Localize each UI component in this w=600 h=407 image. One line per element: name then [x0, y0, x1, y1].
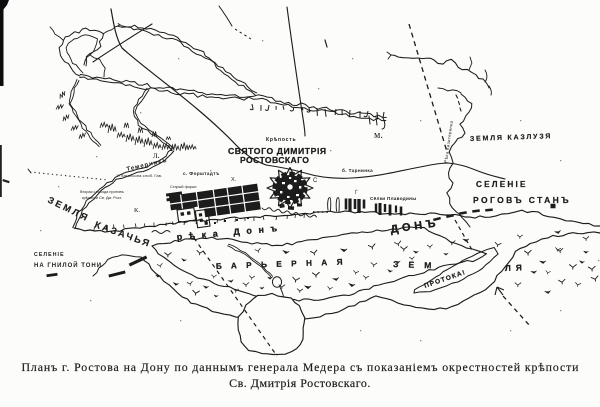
svg-text:ЗЕМ: ЗЕМ: [393, 259, 442, 271]
svg-text:м.: м.: [374, 130, 383, 141]
svg-text:Ѓ: Ѓ: [355, 189, 358, 196]
svg-text:Сёлки Плаводины: Сёлки Плаводины: [370, 196, 416, 201]
svg-text:К.: К.: [134, 207, 140, 214]
svg-text:НА ГНИЛОЙ ТОНИ: НА ГНИЛОЙ ТОНИ: [34, 261, 102, 269]
svg-text:Крѣпость: Крѣпость: [266, 137, 296, 143]
svg-text:б. Тарнинка: б. Тарнинка: [342, 167, 373, 173]
svg-text:л.: л.: [153, 150, 160, 160]
svg-text:крѣпости Св. Дм. Рост.: крѣпости Св. Дм. Рост.: [82, 196, 122, 200]
svg-text:Вторая слобода противъ: Вторая слобода противъ: [80, 190, 124, 194]
svg-text:Х.: Х.: [231, 177, 237, 183]
svg-text:РОГОВЪ СТАНЪ: РОГОВЪ СТАНЪ: [473, 195, 571, 205]
svg-text:ЛЯ: ЛЯ: [505, 262, 527, 273]
svg-text:1ᵍ батальона слоб. Гав.: 1ᵍ батальона слоб. Гав.: [116, 173, 162, 178]
svg-text:Старый форшт.: Старый форшт.: [170, 185, 197, 189]
svg-text:РОСТОВСКАГО: РОСТОВСКАГО: [240, 155, 309, 165]
svg-text:Планъ г. Ростова на Дону по да: Планъ г. Ростова на Дону по даннымъ гене…: [22, 360, 580, 374]
svg-text:с. Форштадтъ: с. Форштадтъ: [183, 171, 220, 176]
svg-text:С: С: [313, 178, 318, 184]
svg-text:Св. Дмитрія Ростовскаго.: Св. Дмитрія Ростовскаго.: [229, 376, 371, 390]
svg-text:СЕЛЕНІЕ: СЕЛЕНІЕ: [34, 252, 65, 258]
svg-text:СЕЛЕНІЕ: СЕЛЕНІЕ: [476, 180, 528, 189]
